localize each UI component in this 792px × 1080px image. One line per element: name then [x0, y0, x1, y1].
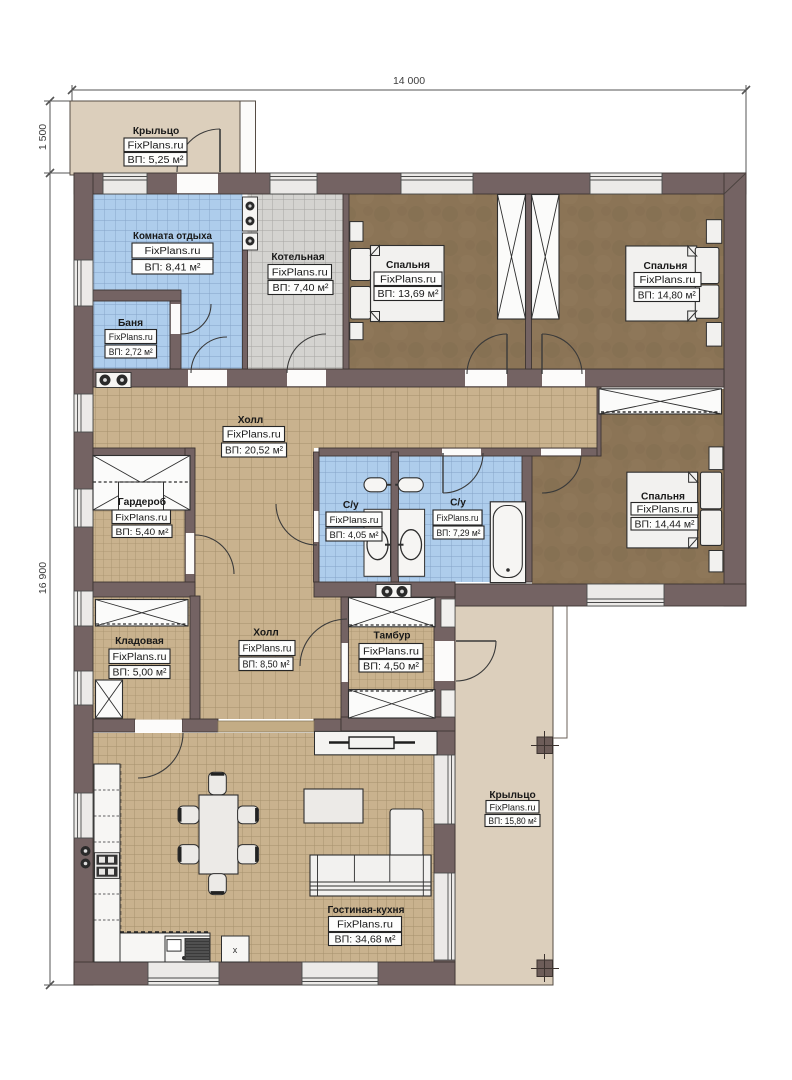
svg-text:14 000: 14 000 [393, 75, 425, 87]
svg-text:1 500: 1 500 [37, 124, 49, 150]
svg-text:Гостиная-кухня: Гостиная-кухня [328, 905, 405, 916]
svg-text:FixPlans.ru: FixPlans.ru [115, 512, 167, 523]
svg-text:FixPlans.ru: FixPlans.ru [490, 802, 536, 813]
svg-text:FixPlans.ru: FixPlans.ru [330, 515, 379, 526]
svg-text:С/у: С/у [450, 498, 466, 509]
svg-text:ВП: 8,50 м²: ВП: 8,50 м² [243, 659, 291, 670]
svg-text:FixPlans.ru: FixPlans.ru [640, 275, 696, 286]
svg-text:Крыльцо: Крыльцо [133, 126, 179, 137]
svg-text:FixPlans.ru: FixPlans.ru [128, 140, 184, 151]
svg-text:Крыльцо: Крыльцо [489, 790, 535, 801]
svg-text:ВП: 2,72 м²: ВП: 2,72 м² [109, 347, 153, 358]
svg-text:FixPlans.ru: FixPlans.ru [337, 920, 393, 931]
svg-text:ВП: 34,68 м²: ВП: 34,68 м² [335, 935, 397, 946]
svg-text:Комната отдыха: Комната отдыха [133, 231, 212, 242]
svg-text:FixPlans.ru: FixPlans.ru [437, 513, 479, 524]
svg-text:ВП: 8,41 м²: ВП: 8,41 м² [145, 262, 202, 273]
svg-text:FixPlans.ru: FixPlans.ru [637, 504, 693, 515]
svg-text:FixPlans.ru: FixPlans.ru [227, 430, 281, 441]
svg-text:Кладовая: Кладовая [115, 636, 164, 647]
svg-text:Спальня: Спальня [641, 492, 685, 503]
svg-text:ВП: 5,25 м²: ВП: 5,25 м² [128, 155, 185, 166]
svg-text:Тамбур: Тамбур [374, 630, 411, 642]
svg-text:ВП: 15,80 м²: ВП: 15,80 м² [489, 816, 537, 827]
svg-text:x: x [233, 945, 238, 955]
svg-text:ВП: 4,50 м²: ВП: 4,50 м² [363, 661, 420, 672]
svg-text:ВП: 13,69 м²: ВП: 13,69 м² [378, 289, 440, 300]
svg-text:FixPlans.ru: FixPlans.ru [145, 246, 201, 257]
svg-text:Холл: Холл [253, 628, 279, 639]
svg-text:FixPlans.ru: FixPlans.ru [380, 274, 436, 285]
svg-text:Спальня: Спальня [643, 261, 687, 272]
svg-text:ВП: 14,44 м²: ВП: 14,44 м² [635, 519, 696, 530]
svg-text:С/у: С/у [343, 500, 359, 511]
svg-text:Холл: Холл [238, 415, 264, 426]
svg-text:Баня: Баня [118, 318, 143, 329]
svg-text:FixPlans.ru: FixPlans.ru [272, 267, 328, 278]
svg-text:FixPlans.ru: FixPlans.ru [363, 647, 419, 658]
svg-text:Котельная: Котельная [271, 252, 324, 263]
svg-text:ВП: 20,52 м²: ВП: 20,52 м² [225, 446, 284, 457]
svg-text:ВП: 14,80 м²: ВП: 14,80 м² [638, 290, 697, 301]
svg-text:ВП: 5,00 м²: ВП: 5,00 м² [113, 668, 168, 679]
svg-text:16 900: 16 900 [37, 562, 49, 594]
svg-text:Гардероб: Гардероб [118, 496, 166, 508]
svg-text:Спальня: Спальня [386, 260, 430, 271]
svg-text:ВП: 4,05 м²: ВП: 4,05 м² [330, 530, 379, 541]
svg-text:ВП: 7,29 м²: ВП: 7,29 м² [437, 528, 481, 539]
svg-text:FixPlans.ru: FixPlans.ru [113, 652, 167, 663]
svg-text:ВП: 7,40 м²: ВП: 7,40 м² [273, 283, 330, 294]
svg-text:FixPlans.ru: FixPlans.ru [243, 644, 292, 655]
svg-text:ВП: 5,40 м²: ВП: 5,40 м² [116, 527, 169, 538]
svg-text:FixPlans.ru: FixPlans.ru [109, 332, 153, 343]
